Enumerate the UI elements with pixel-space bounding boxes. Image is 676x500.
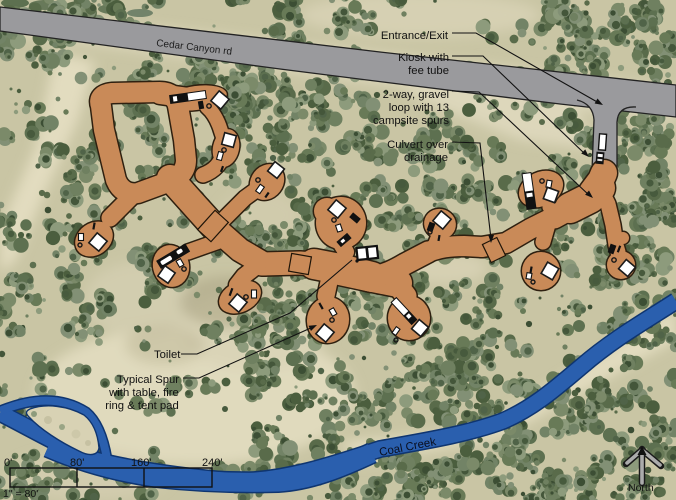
svg-text:Culvert over: Culvert over — [387, 139, 448, 151]
svg-text:Kiosk with: Kiosk with — [398, 52, 449, 64]
svg-text:campsite spurs: campsite spurs — [373, 115, 449, 127]
svg-text:Typical Spur: Typical Spur — [117, 374, 179, 386]
svg-text:Toilet: Toilet — [154, 349, 181, 361]
svg-text:loop with 13: loop with 13 — [389, 102, 449, 114]
svg-text:1" = 80': 1" = 80' — [3, 488, 38, 500]
svg-text:ring & tent pad: ring & tent pad — [105, 400, 178, 412]
svg-text:80': 80' — [70, 457, 84, 469]
svg-text:2-way, gravel: 2-way, gravel — [383, 89, 449, 101]
svg-text:North: North — [628, 482, 654, 494]
svg-text:fee tube: fee tube — [408, 65, 449, 77]
svg-text:240': 240' — [202, 457, 222, 469]
svg-text:160': 160' — [131, 457, 151, 469]
svg-text:0': 0' — [4, 457, 12, 469]
svg-text:with table, fire: with table, fire — [108, 387, 179, 399]
svg-text:drainage: drainage — [404, 152, 448, 164]
svg-text:Entrance/Exit: Entrance/Exit — [381, 30, 449, 42]
